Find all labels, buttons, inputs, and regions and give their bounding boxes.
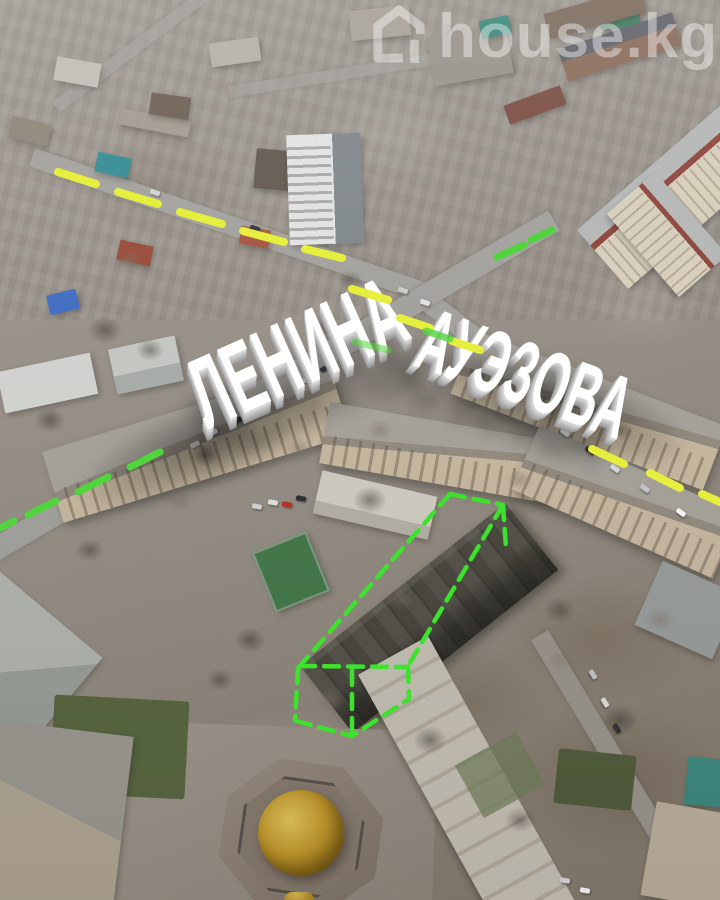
watermark-text: house.kg [438,2,718,72]
watermark: house.kg [370,2,718,72]
house-outline-icon [370,2,428,64]
highlighted-building-outline [0,0,720,900]
aerial-photo: ЛЕНИНА АУЭЗОВА house.kg [0,0,720,900]
